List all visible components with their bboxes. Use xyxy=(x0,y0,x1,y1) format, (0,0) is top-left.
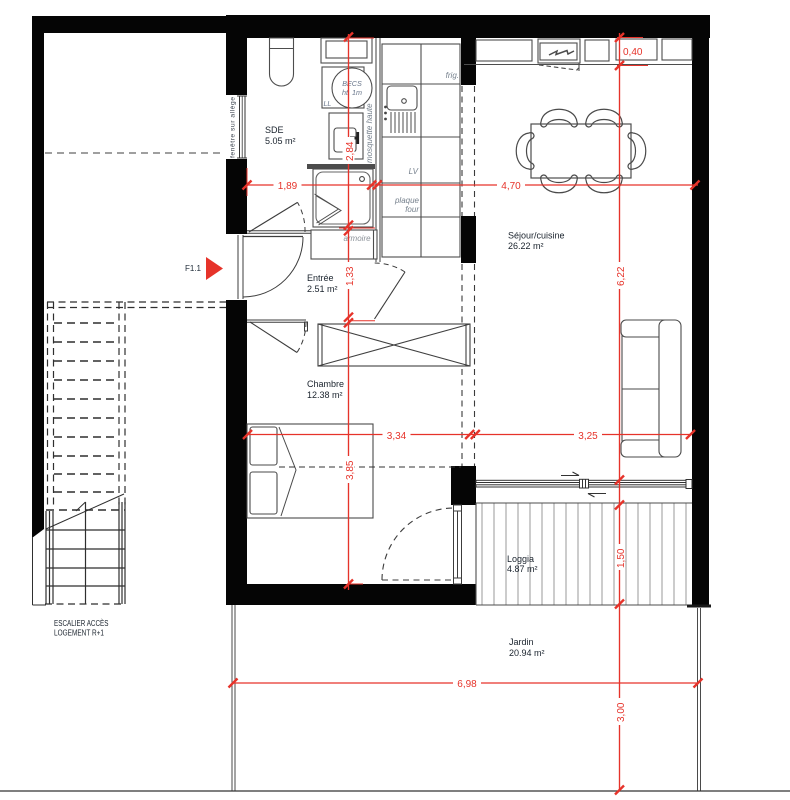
svg-text:fenêtre sur allège: fenêtre sur allège xyxy=(230,97,237,158)
svg-text:1,50: 1,50 xyxy=(616,548,627,568)
svg-text:1,89: 1,89 xyxy=(278,181,298,192)
svg-text:LOGEMENT R+1: LOGEMENT R+1 xyxy=(54,629,104,638)
svg-text:2.51 m²: 2.51 m² xyxy=(307,284,338,294)
svg-text:armoire: armoire xyxy=(343,234,371,243)
svg-text:ESCALIER ACCÈS: ESCALIER ACCÈS xyxy=(54,619,109,628)
svg-text:12.38 m²: 12.38 m² xyxy=(307,390,343,400)
svg-text:Séjour/cuisine: Séjour/cuisine xyxy=(508,231,565,241)
svg-text:6,22: 6,22 xyxy=(616,266,627,286)
svg-text:mosquette haute: mosquette haute xyxy=(365,103,374,163)
svg-text:0,40: 0,40 xyxy=(623,47,643,58)
svg-text:ht. 1m: ht. 1m xyxy=(342,88,362,97)
svg-text:6,98: 6,98 xyxy=(457,679,477,690)
svg-text:1,33: 1,33 xyxy=(345,266,356,286)
svg-text:4,70: 4,70 xyxy=(501,181,521,192)
svg-text:26.22 m²: 26.22 m² xyxy=(508,241,544,251)
svg-text:Entrée: Entrée xyxy=(307,273,334,283)
svg-text:Loggia: Loggia xyxy=(507,554,534,564)
svg-text:Chambre: Chambre xyxy=(307,379,344,389)
svg-text:LV: LV xyxy=(409,167,419,176)
svg-text:BECS: BECS xyxy=(342,79,362,88)
svg-text:4.87 m²: 4.87 m² xyxy=(507,564,538,574)
svg-text:3,34: 3,34 xyxy=(387,431,407,442)
svg-text:frig.: frig. xyxy=(446,71,459,80)
svg-text:20.94 m²: 20.94 m² xyxy=(509,648,545,658)
svg-text:Jardin: Jardin xyxy=(509,637,534,647)
svg-text:F1.1: F1.1 xyxy=(185,264,202,273)
svg-text:four: four xyxy=(405,205,419,214)
svg-text:3,85: 3,85 xyxy=(345,460,356,480)
svg-text:3,25: 3,25 xyxy=(578,431,598,442)
svg-text:SDE: SDE xyxy=(265,125,284,135)
svg-text:3,00: 3,00 xyxy=(616,702,627,722)
svg-text:LL: LL xyxy=(324,101,332,108)
svg-text:plaque: plaque xyxy=(394,196,420,205)
svg-text:5.05 m²: 5.05 m² xyxy=(265,136,296,146)
svg-text:2,84: 2,84 xyxy=(345,141,356,161)
